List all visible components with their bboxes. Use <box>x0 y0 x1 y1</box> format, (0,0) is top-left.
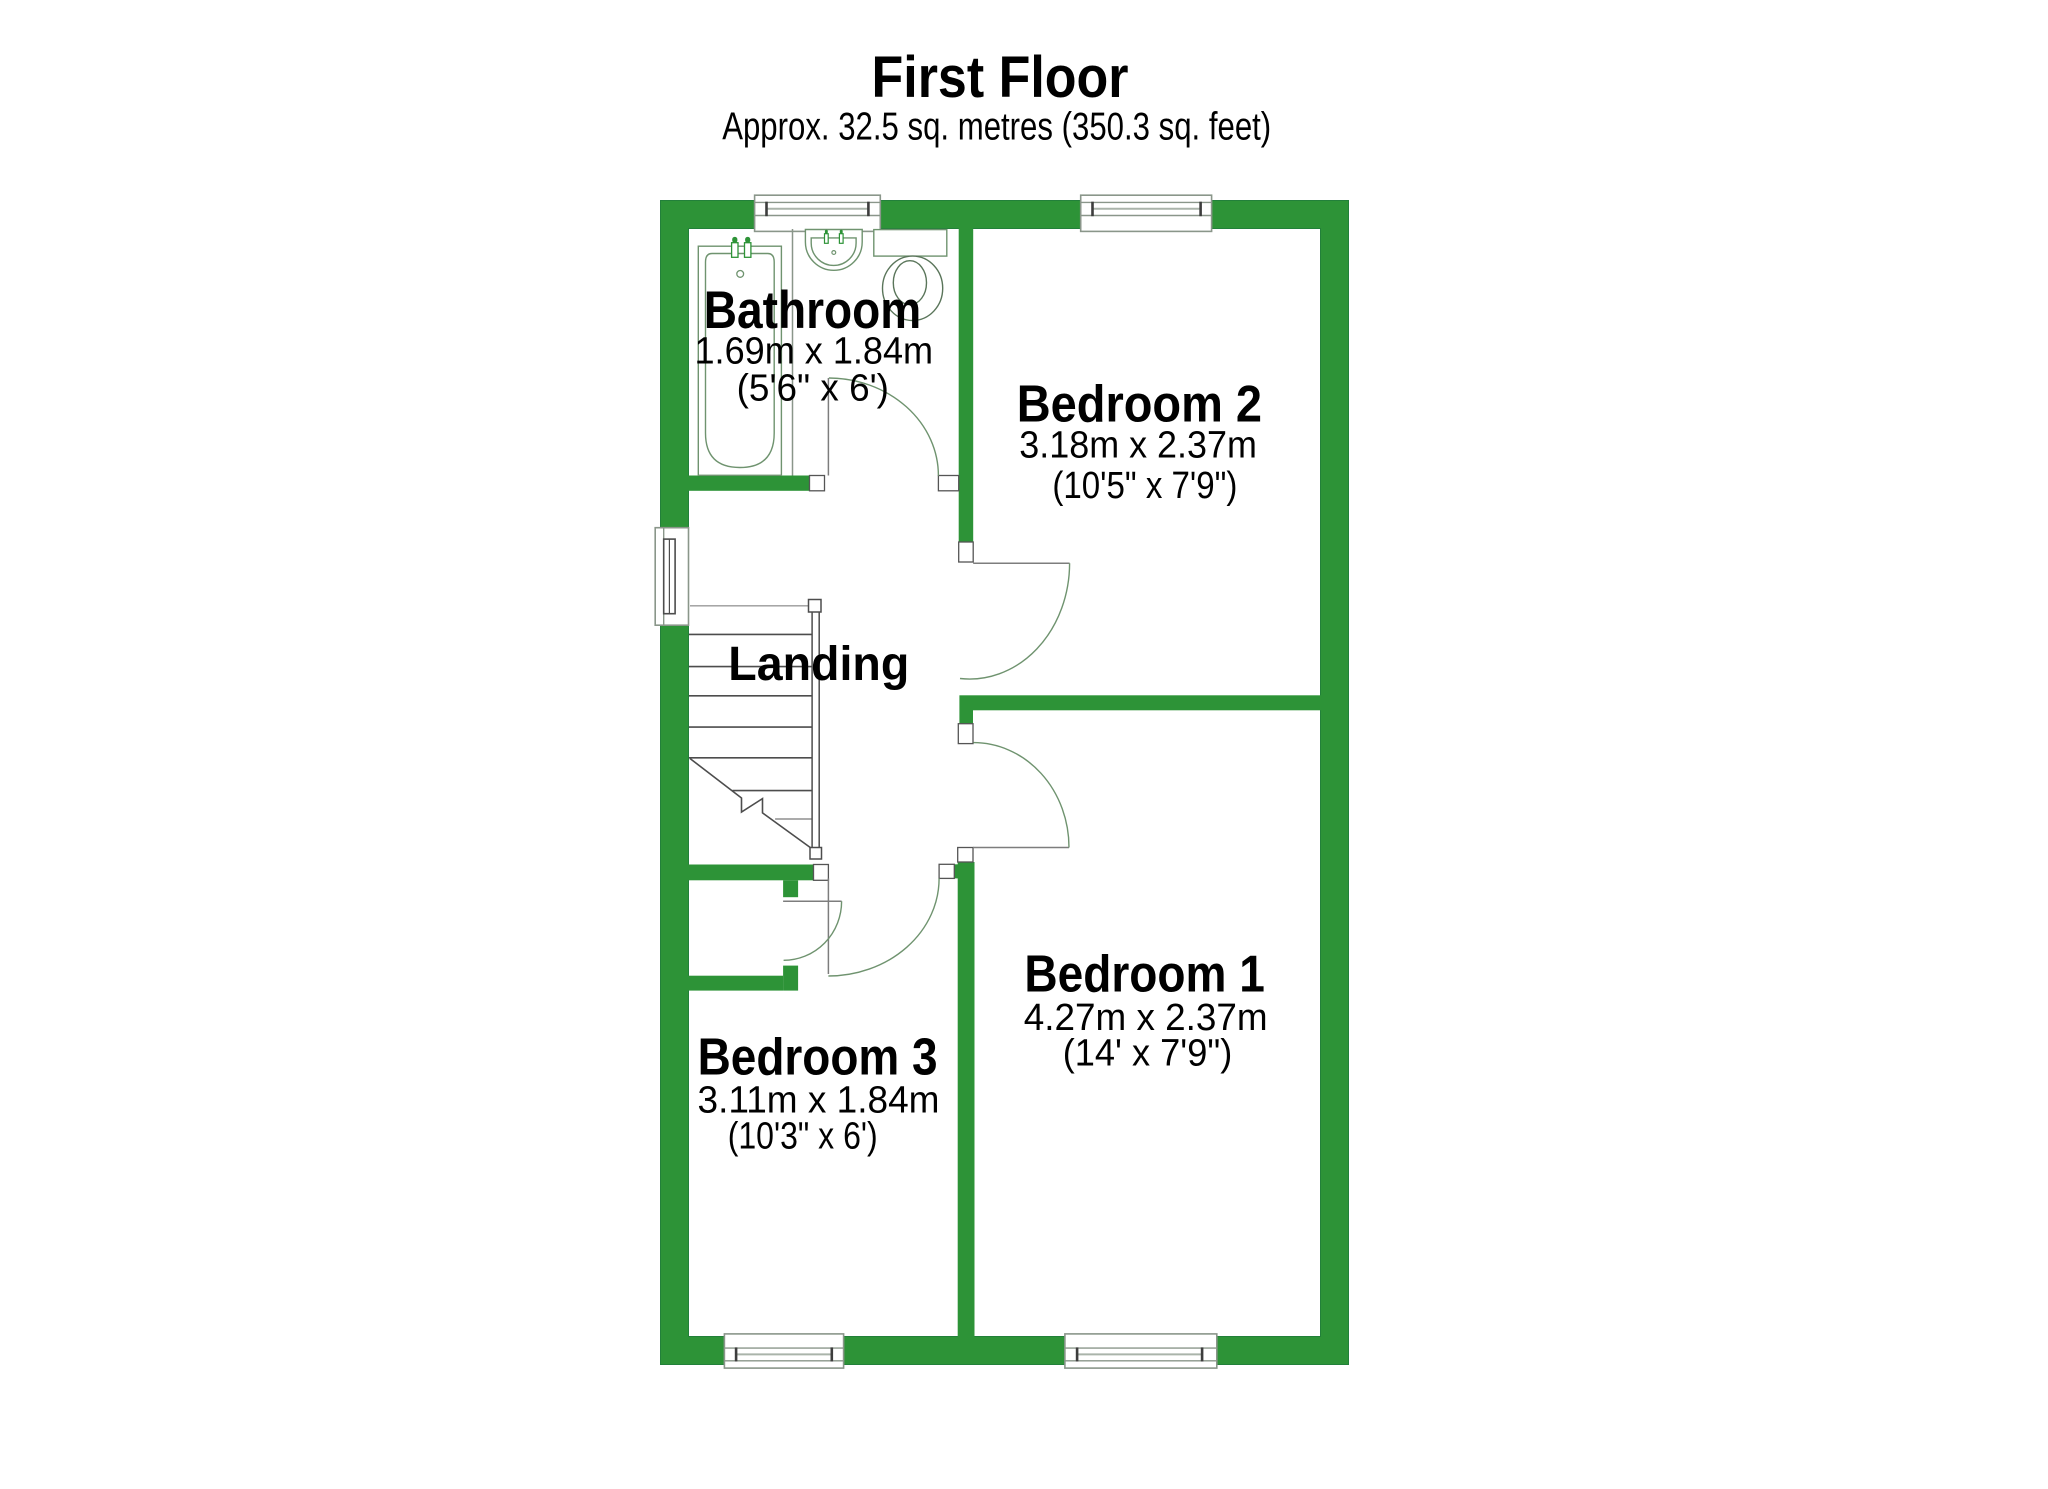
svg-text:(5'6" x 6'): (5'6" x 6') <box>737 368 889 410</box>
svg-text:(10'5" x 7'9"): (10'5" x 7'9") <box>1052 465 1237 507</box>
svg-text:First Floor: First Floor <box>872 45 1129 110</box>
svg-text:1.69m x 1.84m: 1.69m x 1.84m <box>695 331 934 373</box>
svg-text:Bedroom 1: Bedroom 1 <box>1024 945 1265 1003</box>
svg-text:3.18m x 2.37m: 3.18m x 2.37m <box>1019 424 1257 466</box>
svg-text:Landing: Landing <box>728 638 909 691</box>
svg-text:Bedroom 3: Bedroom 3 <box>698 1029 938 1087</box>
svg-text:(14' x 7'9"): (14' x 7'9") <box>1063 1033 1233 1075</box>
svg-text:(10'3" x 6'): (10'3" x 6') <box>728 1116 878 1158</box>
svg-text:Approx. 32.5 sq. metres (350.3: Approx. 32.5 sq. metres (350.3 sq. feet) <box>722 106 1271 149</box>
